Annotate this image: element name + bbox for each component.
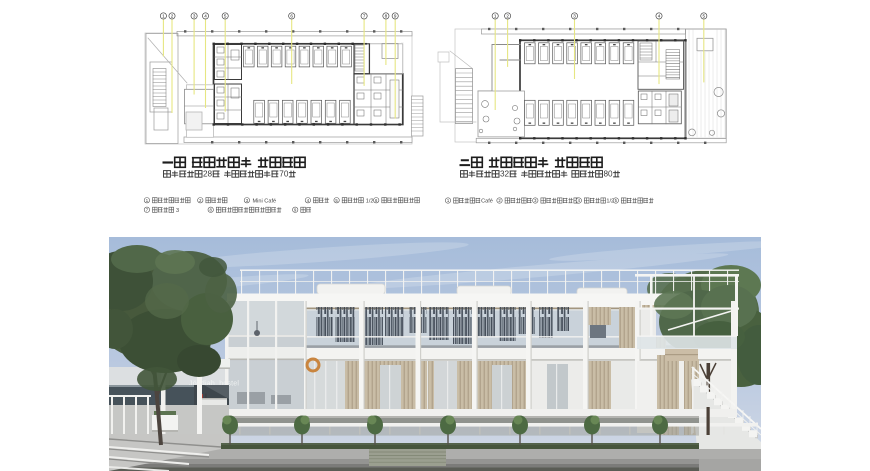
svg-text:1: 1 [162, 14, 165, 19]
svg-text:5: 5 [703, 14, 706, 19]
svg-text:4: 4 [204, 14, 207, 19]
svg-text:4: 4 [658, 14, 661, 19]
svg-text:80: 80 [604, 170, 614, 179]
svg-text:3: 3 [193, 14, 196, 19]
svg-text:3: 3 [175, 208, 180, 214]
svg-text:Mini Café: Mini Café [253, 198, 277, 204]
svg-text:Café: Café [481, 199, 493, 205]
svg-text:32: 32 [500, 170, 510, 179]
svg-text:1/2: 1/2 [364, 198, 373, 204]
svg-text:8: 8 [385, 14, 388, 19]
svg-text:9: 9 [394, 14, 397, 19]
svg-text:7: 7 [363, 14, 366, 19]
svg-text:28: 28 [203, 170, 213, 179]
svg-text:70: 70 [279, 170, 289, 179]
svg-text:2: 2 [506, 14, 509, 19]
svg-text:5: 5 [224, 14, 227, 19]
svg-text:3: 3 [573, 14, 576, 19]
svg-text:2: 2 [171, 14, 174, 19]
svg-text:6: 6 [290, 14, 293, 19]
svg-text:1: 1 [494, 14, 497, 19]
